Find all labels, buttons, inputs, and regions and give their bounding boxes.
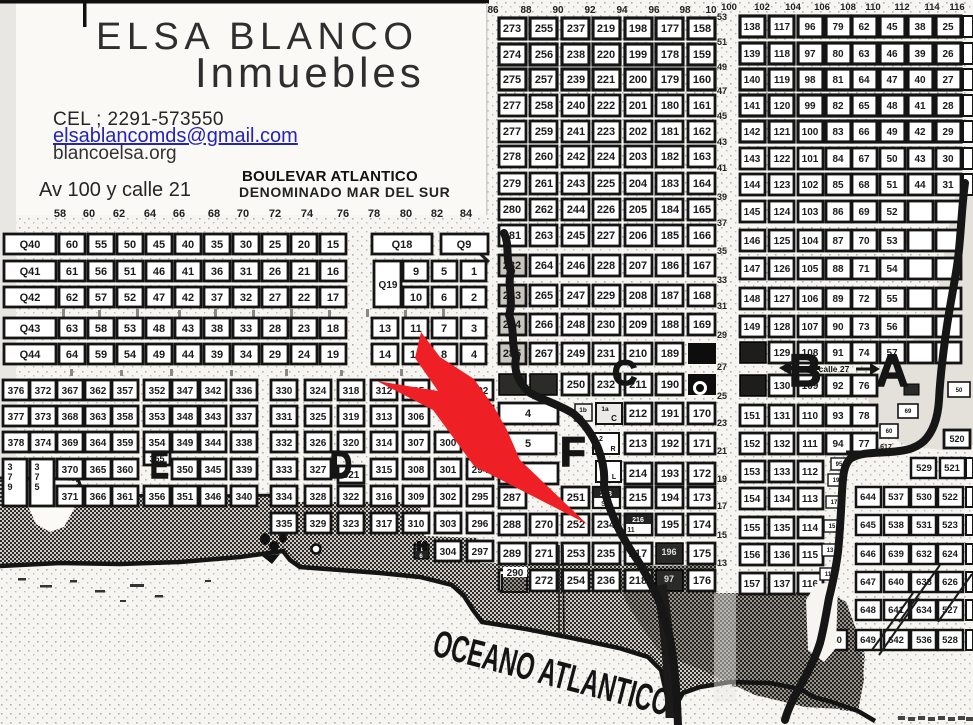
svg-text:538: 538 — [888, 520, 904, 531]
svg-text:624: 624 — [942, 549, 959, 560]
svg-text:42: 42 — [914, 127, 926, 138]
svg-text:322: 322 — [343, 492, 360, 503]
svg-text:51: 51 — [886, 180, 898, 191]
svg-text:220: 220 — [597, 49, 615, 61]
svg-text:144: 144 — [744, 180, 761, 191]
svg-text:34: 34 — [240, 349, 253, 361]
svg-text:254: 254 — [567, 575, 586, 587]
svg-text:DENOMINADO MAR DEL SUR: DENOMINADO MAR DEL SUR — [239, 184, 450, 200]
svg-text:640: 640 — [888, 577, 904, 588]
svg-text:103: 103 — [802, 207, 819, 218]
svg-text:154: 154 — [744, 494, 761, 505]
svg-text:70: 70 — [858, 236, 870, 247]
svg-text:128: 128 — [774, 322, 791, 333]
svg-text:227: 227 — [597, 230, 615, 242]
svg-text:248: 248 — [567, 319, 585, 331]
svg-text:68: 68 — [858, 180, 870, 191]
svg-text:46: 46 — [886, 49, 898, 60]
svg-text:44: 44 — [914, 180, 926, 191]
svg-text:7: 7 — [441, 323, 447, 335]
svg-text:274: 274 — [503, 49, 522, 61]
svg-text:215: 215 — [629, 492, 647, 504]
svg-text:174: 174 — [693, 519, 712, 531]
svg-text:105: 105 — [802, 264, 819, 275]
svg-text:163: 163 — [693, 151, 711, 163]
svg-text:271: 271 — [535, 548, 553, 560]
svg-text:55: 55 — [95, 239, 107, 251]
svg-text:50: 50 — [886, 154, 898, 165]
svg-text:21: 21 — [717, 446, 727, 456]
svg-text:319: 319 — [343, 412, 360, 423]
svg-text:260: 260 — [535, 151, 553, 163]
svg-text:26: 26 — [269, 266, 281, 278]
svg-text:177: 177 — [661, 23, 679, 35]
svg-text:265: 265 — [535, 290, 553, 302]
svg-text:120: 120 — [774, 101, 791, 112]
svg-text:21: 21 — [298, 266, 310, 278]
svg-text:143: 143 — [744, 154, 761, 165]
svg-text:29: 29 — [269, 349, 281, 361]
svg-text:207: 207 — [629, 260, 647, 272]
svg-text:Q9: Q9 — [457, 239, 472, 251]
svg-text:313: 313 — [376, 412, 393, 423]
svg-text:106: 106 — [802, 294, 819, 305]
svg-text:31: 31 — [240, 266, 252, 278]
svg-text:16: 16 — [327, 266, 339, 278]
svg-text:349: 349 — [177, 438, 194, 449]
svg-text:113: 113 — [802, 494, 819, 505]
svg-text:43: 43 — [914, 154, 926, 165]
svg-text:49: 49 — [153, 349, 165, 361]
svg-text:54: 54 — [124, 349, 137, 361]
svg-text:25: 25 — [269, 239, 281, 251]
svg-text:141: 141 — [744, 101, 761, 112]
svg-text:9: 9 — [413, 266, 419, 278]
svg-text:50: 50 — [956, 388, 963, 394]
svg-text:273: 273 — [503, 23, 521, 35]
svg-text:94: 94 — [616, 5, 628, 16]
svg-text:117: 117 — [774, 22, 791, 33]
svg-text:356: 356 — [149, 492, 166, 503]
svg-text:114: 114 — [802, 523, 819, 534]
svg-text:166: 166 — [693, 230, 711, 242]
svg-text:31: 31 — [717, 301, 727, 311]
svg-text:203: 203 — [629, 151, 647, 163]
svg-text:323: 323 — [343, 519, 360, 530]
svg-text:66: 66 — [858, 127, 870, 138]
svg-text:263: 263 — [535, 230, 553, 242]
svg-text:28: 28 — [269, 323, 281, 335]
svg-text:47: 47 — [153, 292, 165, 304]
svg-text:80: 80 — [400, 208, 412, 220]
svg-text:337: 337 — [236, 412, 253, 423]
svg-text:126: 126 — [774, 264, 791, 275]
svg-text:BOULEVAR ATLANTICO: BOULEVAR ATLANTICO — [242, 168, 418, 185]
svg-text:262: 262 — [535, 204, 553, 216]
svg-text:35: 35 — [717, 246, 727, 256]
svg-text:317: 317 — [376, 519, 393, 530]
svg-text:17: 17 — [717, 501, 727, 511]
svg-text:168: 168 — [693, 290, 711, 302]
svg-text:15: 15 — [829, 524, 836, 530]
svg-text:219: 219 — [597, 23, 615, 35]
svg-text:530: 530 — [916, 492, 932, 503]
svg-text:88: 88 — [832, 264, 844, 275]
svg-text:334: 334 — [276, 492, 293, 503]
svg-text:96: 96 — [648, 5, 660, 16]
svg-text:60: 60 — [66, 239, 78, 251]
svg-text:50: 50 — [124, 239, 136, 251]
svg-text:99: 99 — [804, 101, 816, 112]
svg-text:316: 316 — [376, 492, 393, 503]
svg-text:66: 66 — [173, 208, 185, 220]
svg-text:353: 353 — [149, 412, 166, 423]
svg-text:54: 54 — [886, 264, 898, 275]
svg-text:202: 202 — [629, 126, 647, 138]
svg-text:F: F — [560, 428, 586, 475]
svg-text:88: 88 — [520, 5, 532, 16]
svg-text:190: 190 — [661, 379, 679, 391]
svg-text:49: 49 — [717, 62, 727, 72]
svg-text:Q43: Q43 — [20, 323, 41, 335]
svg-text:348: 348 — [177, 412, 194, 423]
svg-text:46: 46 — [153, 266, 165, 278]
svg-text:325: 325 — [310, 412, 327, 423]
svg-text:221: 221 — [597, 74, 615, 86]
svg-text:204: 204 — [629, 178, 648, 190]
svg-text:208: 208 — [629, 290, 647, 302]
svg-text:280: 280 — [503, 204, 521, 216]
svg-text:242: 242 — [567, 151, 585, 163]
svg-text:224: 224 — [597, 151, 616, 163]
svg-text:648: 648 — [860, 605, 876, 616]
svg-text:318: 318 — [343, 386, 360, 397]
svg-text:41: 41 — [182, 266, 194, 278]
svg-text:62: 62 — [66, 292, 78, 304]
svg-text:289: 289 — [503, 548, 521, 560]
svg-text:335: 335 — [276, 519, 293, 530]
svg-text:11: 11 — [627, 527, 635, 534]
svg-text:90: 90 — [832, 322, 844, 333]
svg-text:C: C — [612, 354, 637, 393]
svg-text:92: 92 — [832, 381, 844, 392]
svg-text:111: 111 — [802, 439, 818, 450]
svg-text:632: 632 — [916, 549, 932, 560]
svg-text:13: 13 — [717, 558, 727, 568]
svg-text:72: 72 — [858, 294, 870, 305]
svg-text:222: 222 — [597, 100, 615, 112]
svg-text:2: 2 — [471, 292, 477, 304]
svg-text:626: 626 — [942, 577, 958, 588]
svg-text:53: 53 — [886, 236, 898, 247]
svg-text:37: 37 — [717, 218, 727, 228]
svg-text:142: 142 — [744, 127, 761, 138]
svg-text:43: 43 — [182, 323, 194, 335]
svg-text:77: 77 — [858, 439, 870, 450]
svg-text:A: A — [876, 345, 909, 396]
svg-text:9: 9 — [7, 482, 12, 492]
svg-text:39: 39 — [211, 349, 223, 361]
svg-text:352: 352 — [149, 386, 166, 397]
svg-text:112: 112 — [802, 467, 819, 478]
svg-text:59: 59 — [95, 349, 107, 361]
svg-text:25: 25 — [942, 22, 954, 33]
svg-text:13: 13 — [379, 323, 391, 335]
svg-text:83: 83 — [832, 127, 844, 138]
svg-text:49: 49 — [886, 127, 898, 138]
svg-text:157: 157 — [744, 579, 761, 590]
svg-text:230: 230 — [597, 319, 615, 331]
svg-text:314: 314 — [376, 438, 393, 449]
svg-text:297: 297 — [472, 547, 489, 558]
svg-text:86: 86 — [832, 207, 844, 218]
svg-text:11: 11 — [410, 323, 422, 335]
svg-text:301: 301 — [440, 465, 457, 476]
svg-text:303: 303 — [440, 519, 457, 530]
svg-text:17: 17 — [327, 292, 339, 304]
svg-text:78: 78 — [858, 411, 870, 422]
svg-text:344: 344 — [205, 438, 222, 449]
svg-text:257: 257 — [535, 74, 553, 86]
svg-text:23: 23 — [298, 323, 310, 335]
svg-text:36: 36 — [211, 266, 223, 278]
svg-text:53: 53 — [717, 12, 727, 22]
svg-text:245: 245 — [567, 230, 585, 242]
svg-text:45: 45 — [717, 111, 727, 121]
svg-text:183: 183 — [661, 178, 679, 190]
svg-text:71: 71 — [858, 264, 870, 275]
svg-text:340: 340 — [236, 492, 253, 503]
svg-text:41: 41 — [914, 101, 926, 112]
svg-text:115: 115 — [802, 550, 819, 561]
svg-text:123: 123 — [774, 180, 791, 191]
svg-text:191: 191 — [661, 408, 679, 420]
svg-text:62: 62 — [858, 22, 870, 33]
svg-text:266: 266 — [535, 319, 553, 331]
svg-text:86: 86 — [487, 5, 499, 16]
svg-text:228: 228 — [597, 260, 615, 272]
svg-text:35: 35 — [211, 239, 223, 251]
svg-text:634: 634 — [916, 605, 933, 616]
svg-text:55: 55 — [886, 294, 898, 305]
svg-text:94: 94 — [832, 439, 844, 450]
svg-text:4: 4 — [471, 349, 478, 361]
svg-text:259: 259 — [535, 126, 553, 138]
svg-text:97: 97 — [664, 574, 674, 584]
svg-text:6: 6 — [441, 292, 447, 304]
svg-text:37: 37 — [211, 292, 223, 304]
svg-text:81: 81 — [832, 75, 844, 86]
svg-text:646: 646 — [860, 549, 876, 560]
svg-text:Q19: Q19 — [379, 280, 398, 291]
svg-text:104: 104 — [785, 2, 802, 13]
svg-text:53: 53 — [124, 323, 136, 335]
svg-text:82: 82 — [431, 208, 443, 220]
svg-text:159: 159 — [693, 49, 711, 61]
svg-text:27: 27 — [942, 75, 954, 86]
svg-text:133: 133 — [774, 467, 791, 478]
svg-text:647: 647 — [860, 577, 876, 588]
svg-text:205: 205 — [629, 204, 647, 216]
svg-text:333: 333 — [276, 465, 293, 476]
svg-text:17: 17 — [831, 500, 838, 506]
svg-text:528: 528 — [942, 635, 958, 646]
svg-text:370: 370 — [62, 465, 79, 476]
svg-text:56: 56 — [886, 322, 898, 333]
svg-text:45: 45 — [153, 239, 165, 251]
svg-text:275: 275 — [503, 74, 521, 86]
svg-text:R: R — [610, 446, 615, 453]
svg-text:196: 196 — [661, 547, 676, 557]
svg-text:376: 376 — [8, 386, 25, 397]
svg-text:22: 22 — [298, 292, 310, 304]
svg-text:76: 76 — [858, 381, 870, 392]
svg-text:blancoelsa.org: blancoelsa.org — [53, 143, 177, 164]
svg-text:365: 365 — [90, 465, 107, 476]
svg-text:364: 364 — [90, 438, 107, 449]
svg-text:98: 98 — [679, 5, 691, 16]
svg-text:40: 40 — [914, 75, 926, 86]
svg-text:642: 642 — [888, 635, 904, 646]
svg-text:80: 80 — [832, 49, 844, 60]
svg-text:3: 3 — [34, 462, 39, 472]
svg-text:27: 27 — [269, 292, 281, 304]
svg-text:338: 338 — [236, 438, 253, 449]
svg-text:192: 192 — [661, 438, 679, 450]
svg-text:64: 64 — [144, 208, 157, 220]
svg-text:307: 307 — [408, 438, 425, 449]
svg-text:98: 98 — [804, 75, 816, 86]
svg-text:223: 223 — [597, 126, 615, 138]
svg-text:300: 300 — [440, 438, 457, 449]
svg-text:373: 373 — [35, 412, 52, 423]
svg-text:Q18: Q18 — [392, 239, 413, 251]
svg-text:47: 47 — [886, 75, 898, 86]
svg-text:112: 112 — [894, 2, 909, 13]
svg-text:302: 302 — [440, 492, 457, 503]
svg-text:225: 225 — [597, 178, 615, 190]
svg-text:108: 108 — [840, 2, 856, 13]
svg-text:58: 58 — [95, 323, 107, 335]
svg-text:30: 30 — [240, 239, 252, 251]
svg-text:4: 4 — [525, 408, 532, 420]
svg-text:19: 19 — [327, 349, 339, 361]
svg-text:70: 70 — [237, 208, 249, 220]
svg-text:187: 187 — [661, 290, 679, 302]
svg-text:258: 258 — [535, 100, 553, 112]
svg-text:350: 350 — [177, 465, 194, 476]
svg-text:calle 27: calle 27 — [819, 364, 850, 374]
svg-text:378: 378 — [8, 438, 25, 449]
svg-text:345: 345 — [205, 465, 222, 476]
svg-text:29: 29 — [717, 330, 727, 340]
svg-text:45: 45 — [886, 22, 898, 33]
svg-text:10: 10 — [705, 5, 717, 16]
svg-text:152: 152 — [744, 439, 761, 450]
svg-text:15: 15 — [327, 239, 339, 251]
svg-text:279: 279 — [503, 178, 521, 190]
svg-text:290: 290 — [507, 568, 524, 579]
svg-text:270: 270 — [535, 519, 553, 531]
svg-text:277: 277 — [503, 126, 521, 138]
svg-text:L: L — [612, 474, 617, 481]
svg-text:267: 267 — [535, 348, 553, 360]
svg-text:72: 72 — [269, 208, 281, 220]
svg-text:58: 58 — [54, 208, 66, 220]
svg-text:160: 160 — [693, 74, 711, 86]
svg-text:82: 82 — [832, 101, 844, 112]
svg-text:1a: 1a — [601, 406, 609, 413]
svg-text:523: 523 — [942, 520, 958, 531]
svg-text:10: 10 — [410, 292, 422, 304]
svg-text:D: D — [330, 443, 352, 486]
svg-text:239: 239 — [567, 74, 585, 86]
svg-text:138: 138 — [744, 22, 761, 33]
svg-text:92: 92 — [584, 5, 596, 16]
svg-text:52: 52 — [886, 207, 898, 218]
svg-text:42: 42 — [182, 292, 194, 304]
svg-text:67: 67 — [858, 154, 870, 165]
svg-text:357: 357 — [117, 386, 134, 397]
svg-text:38: 38 — [914, 22, 926, 33]
svg-text:13: 13 — [827, 548, 834, 554]
svg-text:359: 359 — [117, 438, 134, 449]
svg-text:B: B — [789, 345, 822, 396]
svg-text:247: 247 — [567, 290, 585, 302]
svg-text:243: 243 — [567, 178, 585, 190]
svg-text:C: C — [611, 414, 617, 423]
svg-text:106: 106 — [814, 2, 830, 13]
svg-text:132: 132 — [774, 439, 791, 450]
svg-text:39: 39 — [914, 49, 926, 60]
svg-text:229: 229 — [597, 290, 615, 302]
svg-text:238: 238 — [567, 49, 585, 61]
svg-text:324: 324 — [310, 386, 327, 397]
svg-text:61: 61 — [66, 266, 78, 278]
svg-text:64: 64 — [66, 349, 79, 361]
svg-text:360: 360 — [117, 465, 134, 476]
svg-text:39: 39 — [717, 192, 727, 202]
svg-text:5: 5 — [525, 438, 531, 450]
svg-text:102: 102 — [754, 2, 770, 13]
svg-text:84: 84 — [460, 208, 473, 220]
svg-text:186: 186 — [661, 260, 679, 272]
svg-text:209: 209 — [629, 319, 647, 331]
svg-text:62: 62 — [113, 208, 125, 220]
svg-text:139: 139 — [744, 49, 761, 60]
svg-text:5: 5 — [34, 482, 39, 492]
svg-text:244: 244 — [567, 204, 586, 216]
svg-text:29: 29 — [942, 127, 954, 138]
svg-text:170: 170 — [693, 408, 711, 420]
svg-text:90: 90 — [552, 5, 564, 16]
svg-text:310: 310 — [408, 519, 425, 530]
svg-text:E: E — [150, 444, 169, 488]
svg-text:189: 189 — [661, 348, 679, 360]
svg-text:256: 256 — [535, 49, 553, 61]
svg-text:93: 93 — [832, 411, 844, 422]
svg-text:101: 101 — [802, 154, 819, 165]
svg-text:96: 96 — [804, 22, 816, 33]
svg-text:521: 521 — [944, 463, 961, 474]
svg-text:308: 308 — [408, 465, 425, 476]
svg-text:23: 23 — [717, 418, 727, 428]
svg-text:212: 212 — [629, 408, 647, 420]
svg-text:363: 363 — [90, 412, 107, 423]
svg-text:536: 536 — [916, 635, 932, 646]
svg-text:278: 278 — [503, 151, 521, 163]
svg-text:74: 74 — [858, 348, 870, 359]
